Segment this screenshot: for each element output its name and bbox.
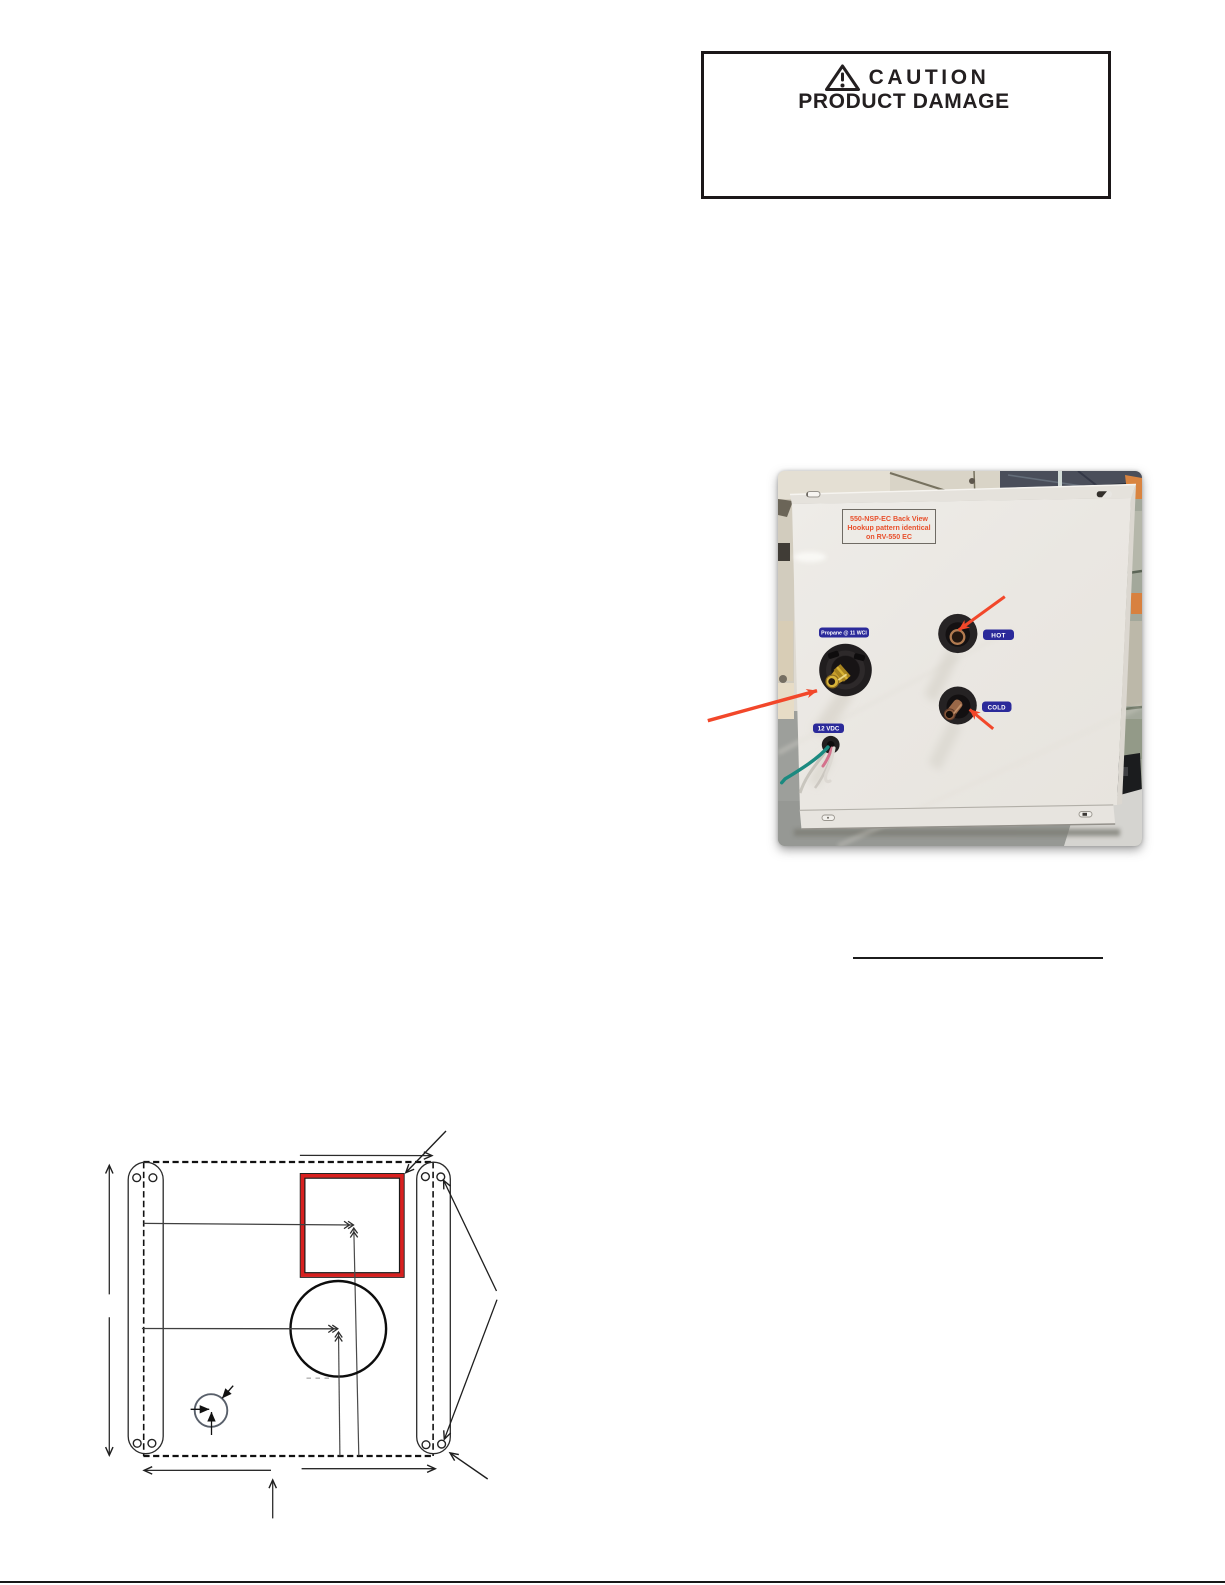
- svg-text:Hookup pattern identical: Hookup pattern identical: [847, 524, 930, 532]
- svg-text:HOT: HOT: [991, 632, 1005, 639]
- svg-text:on RV-550 EC: on RV-550 EC: [866, 533, 912, 541]
- svg-text:550-NSP-EC Back View: 550-NSP-EC Back View: [850, 515, 928, 523]
- svg-text:Propane @ 11 WCI: Propane @ 11 WCI: [821, 631, 867, 637]
- svg-text:COLD: COLD: [988, 704, 1006, 711]
- svg-text:12 VDC: 12 VDC: [818, 726, 840, 733]
